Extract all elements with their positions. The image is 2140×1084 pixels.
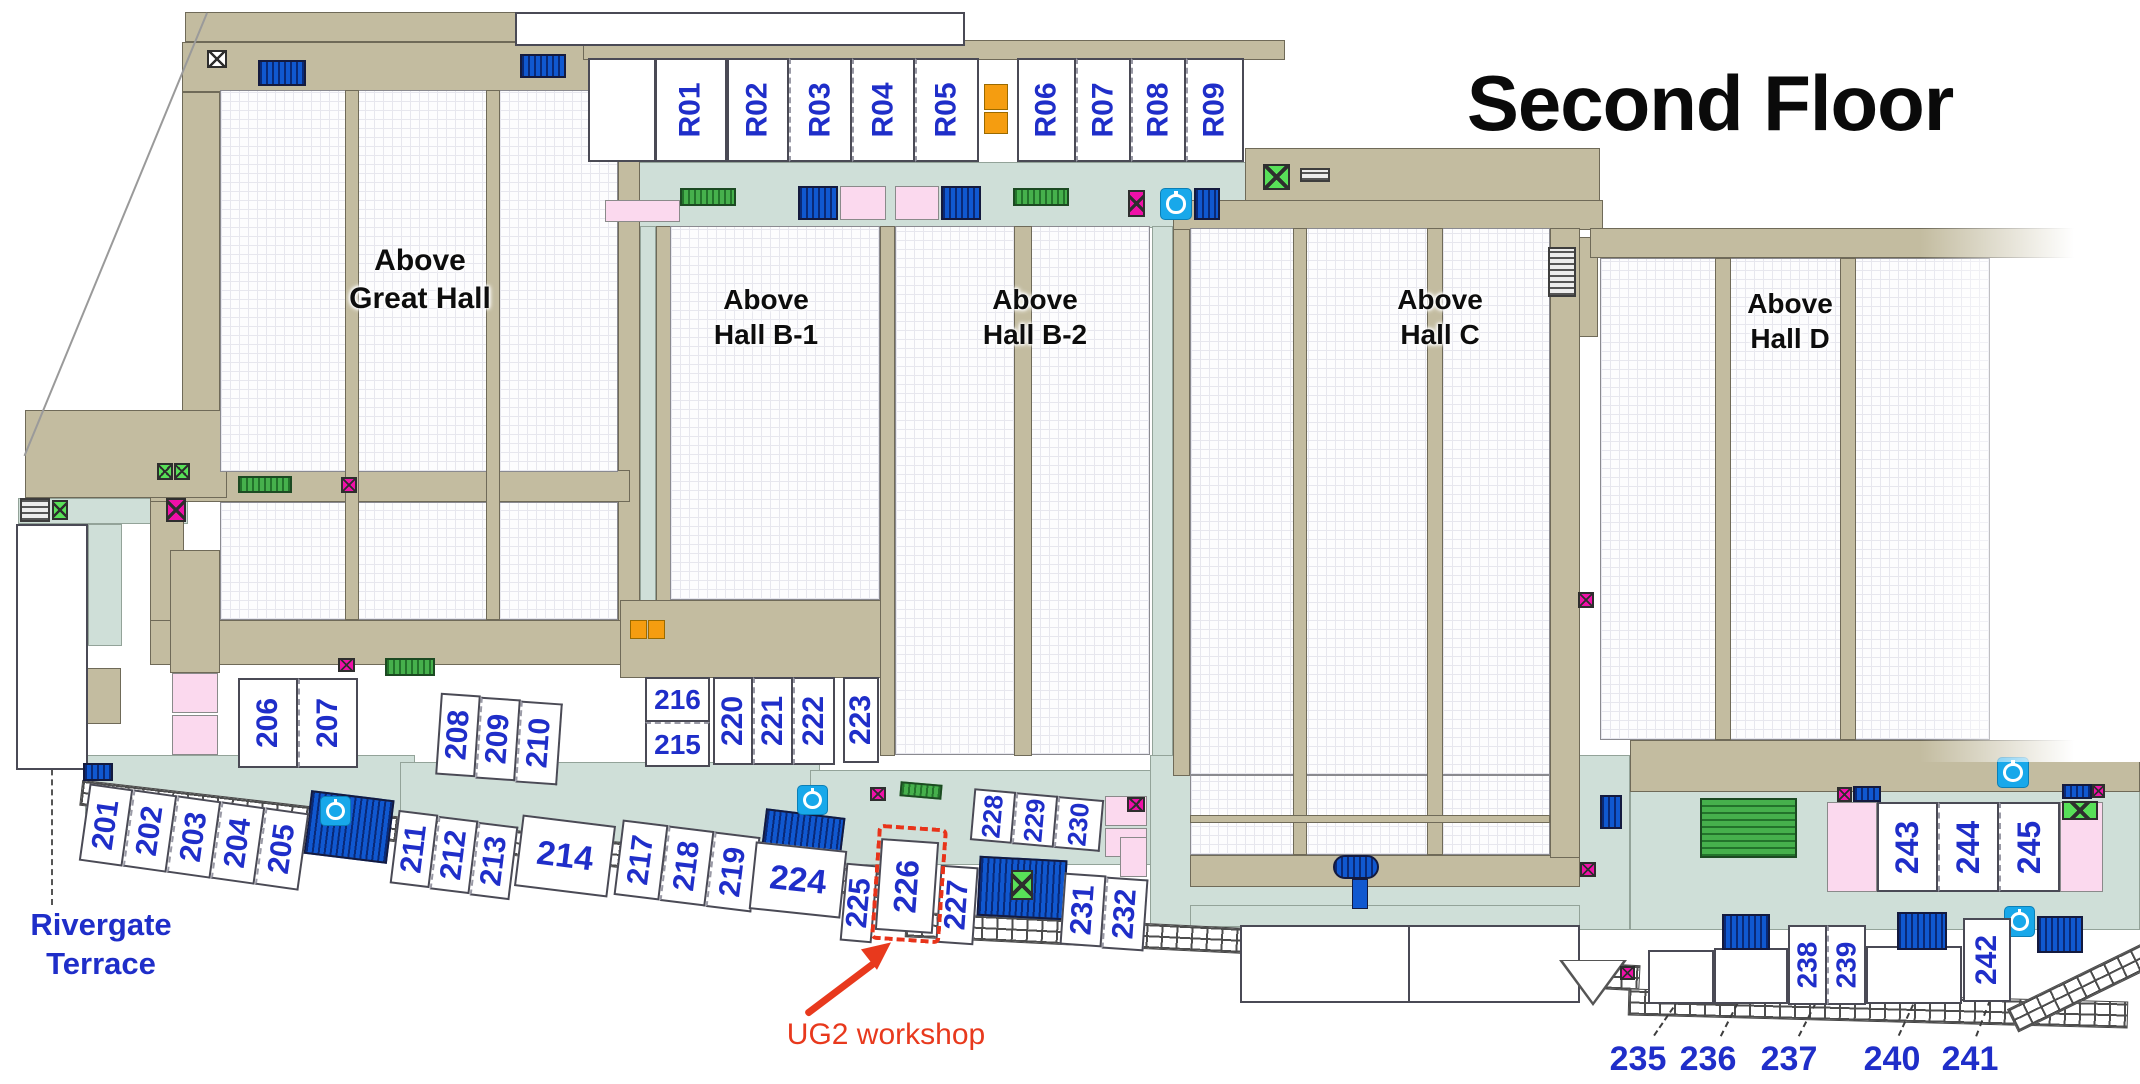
room-label-224: 224: [768, 858, 829, 903]
floor-plan: R01R02R03R04R05R06R07R08R092012022032042…: [0, 0, 2140, 1084]
restroom-area: [172, 715, 218, 755]
room-244: 244: [1938, 802, 1999, 892]
stairs-icon: [680, 188, 736, 206]
room-label-R05: R05: [930, 82, 964, 137]
restroom-area: [895, 186, 939, 220]
elevator-icon: [52, 500, 68, 520]
stairs-icon: [1700, 798, 1797, 858]
escalator-icon: [1600, 795, 1622, 829]
room-label-244: 244: [1950, 820, 1987, 873]
room-232: 232: [1102, 877, 1149, 952]
room-R04: R04: [852, 58, 915, 162]
room-label-217: 217: [621, 833, 661, 887]
room-label-221: 221: [756, 696, 790, 746]
charging-station-icon: [320, 796, 351, 826]
wall-segment: [1190, 855, 1580, 887]
room-label-230: 230: [1062, 801, 1097, 847]
room-230: 230: [1054, 796, 1104, 852]
room-216: 216: [645, 677, 710, 722]
room-label-210: 210: [520, 717, 557, 769]
elevator-icon: [870, 787, 886, 801]
escalator-icon: [1853, 786, 1881, 802]
plug-prong: [811, 788, 814, 793]
room-outline: [1408, 925, 1580, 1003]
room-223: 223: [843, 677, 879, 763]
room-label-238: 238: [1792, 942, 1824, 989]
corridor: [1152, 226, 1173, 756]
plug-prong: [334, 799, 337, 804]
room-outline: [16, 524, 88, 770]
room-label-207: 207: [311, 698, 345, 748]
callout-235: 235: [1598, 1040, 1678, 1080]
elevator-icon: [174, 463, 190, 480]
hall-label-hall-d: Above Hall D: [1670, 286, 1910, 356]
column-strip: [1293, 228, 1307, 855]
plug-prong: [2018, 909, 2021, 914]
elevator-icon: [1580, 862, 1596, 877]
escalator-icon: [520, 54, 566, 78]
room-R06: R06: [1017, 58, 1076, 162]
restroom-area: [605, 200, 680, 222]
plug-ring: [2010, 912, 2029, 931]
elevator-icon: [207, 50, 227, 68]
restroom-area: [1827, 802, 1877, 892]
stairs-icon: [1013, 188, 1069, 206]
room-label-203: 203: [174, 810, 215, 864]
room-label-212: 212: [434, 828, 474, 882]
room-222: 222: [793, 677, 835, 765]
room-label-206: 206: [251, 698, 285, 748]
orange-marker-icon: [984, 84, 1008, 110]
room-231: 231: [1060, 873, 1107, 948]
charging-station-icon: [1160, 188, 1192, 220]
escalator-icon: [83, 763, 113, 781]
orange-marker-icon: [984, 112, 1008, 134]
room-label-205: 205: [262, 822, 303, 876]
room-label-211: 211: [394, 823, 434, 875]
room-R02: R02: [727, 58, 789, 162]
fade-overlay: [1920, 132, 2140, 762]
room-label-219: 219: [713, 845, 753, 899]
room-238: 238: [1788, 925, 1827, 1005]
corridor: [88, 524, 122, 646]
room-213: 213: [470, 822, 519, 900]
room-208: 208: [435, 693, 481, 778]
hall-label-great-hall: Above Great Hall: [300, 242, 540, 317]
ug2-workshop-highlight-box: [870, 824, 948, 945]
room-245: 245: [1999, 802, 2060, 892]
column-strip: [1190, 815, 1550, 823]
callout-241: 241: [1930, 1040, 2010, 1080]
room-label-202: 202: [130, 804, 171, 858]
escalator-icon: [2062, 784, 2092, 799]
elevator-icon: [338, 658, 355, 672]
room-label-242: 242: [1970, 935, 2004, 985]
room-R03: R03: [789, 58, 852, 162]
plug-ring: [1166, 194, 1185, 213]
room-label-222: 222: [797, 696, 831, 746]
plug-ring: [803, 791, 822, 809]
spiral-stair-icon: [1352, 879, 1368, 909]
room-R01: R01: [655, 58, 727, 162]
stairs-icon: [385, 658, 435, 676]
wall-segment: [618, 92, 640, 650]
wall-segment: [25, 410, 227, 498]
hall-label-hall-b1: Above Hall B-1: [646, 282, 886, 352]
room-209: 209: [475, 697, 521, 782]
rivergate-terrace-label: Rivergate Terrace: [6, 906, 196, 984]
escalator-icon: [2037, 916, 2083, 953]
room-label-209: 209: [479, 713, 516, 765]
room-R08: R08: [1131, 58, 1186, 162]
orange-marker-icon: [630, 620, 647, 639]
escalator-icon: [258, 60, 306, 86]
elevator-icon: [157, 463, 173, 480]
column-strip: [345, 90, 359, 620]
room-R07: R07: [1076, 58, 1131, 162]
room-label-232: 232: [1106, 888, 1143, 940]
stairs-icon: [1300, 168, 1330, 182]
room-label-R09: R09: [1198, 82, 1232, 137]
wall-segment: [1173, 200, 1603, 230]
room-label-218: 218: [667, 839, 707, 893]
stairs-icon: [238, 476, 292, 493]
room-label-R07: R07: [1087, 82, 1121, 137]
exterior-diagonal-wall: [24, 13, 208, 457]
room-label-215: 215: [654, 729, 701, 761]
restroom-area: [1120, 837, 1147, 877]
room-label-R02: R02: [741, 82, 775, 137]
room-label-208: 208: [439, 709, 476, 761]
terrace-line1: Rivergate: [30, 907, 171, 942]
room-228: 228: [970, 788, 1016, 843]
room-label-239: 239: [1831, 942, 1863, 989]
plug-ring: [326, 802, 345, 820]
terrace-line2: Terrace: [46, 946, 156, 981]
escalator-icon: [1897, 912, 1947, 950]
wall-segment: [620, 600, 882, 678]
wall-segment: [1173, 226, 1190, 776]
room-214: 214: [514, 815, 616, 898]
elevator-icon: [1263, 164, 1290, 190]
room-206: 206: [238, 678, 298, 768]
room-224: 224: [749, 841, 848, 918]
room-label-243: 243: [1889, 820, 1926, 873]
spiral-stair-icon: [1333, 855, 1379, 879]
elevator-icon: [1011, 870, 1033, 900]
room-label-201: 201: [86, 798, 127, 852]
room-label-227: 227: [938, 879, 975, 931]
wall-segment: [170, 550, 220, 673]
room-label-216: 216: [654, 684, 701, 716]
escalator-icon: [798, 186, 838, 220]
escalator-icon: [1194, 188, 1220, 220]
room-outline: [1648, 950, 1714, 1004]
corridor: [1190, 905, 1580, 927]
room-239: 239: [1827, 925, 1866, 1005]
room-label-R03: R03: [803, 82, 837, 137]
room-label-R01: R01: [674, 82, 708, 137]
elevator-icon: [1127, 797, 1145, 812]
ug2-workshop-arrow: [804, 960, 877, 1017]
room-outline: [1240, 925, 1410, 1003]
room-label-R04: R04: [866, 82, 900, 137]
page-title: Second Floor: [1410, 58, 2010, 149]
callout-236: 236: [1668, 1040, 1748, 1080]
room-label-220: 220: [716, 696, 750, 746]
room-221: 221: [753, 677, 793, 765]
room-label-R06: R06: [1030, 82, 1064, 137]
room-label-229: 229: [1018, 797, 1053, 843]
elevator-icon: [341, 477, 357, 493]
plug-ring: [2003, 763, 2022, 782]
orange-marker-icon: [648, 620, 665, 639]
room-label-245: 245: [2011, 820, 2048, 873]
prow-fill: [1563, 961, 1623, 1002]
room-220: 220: [713, 677, 753, 765]
room-label-223: 223: [844, 695, 878, 745]
room-210: 210: [515, 701, 563, 786]
room-outline: [1866, 946, 1962, 1004]
hall-label-hall-c: Above Hall C: [1320, 282, 1560, 352]
hall-label-hall-b2: Above Hall B-2: [915, 282, 1155, 352]
escalator-icon: [941, 186, 981, 220]
escalator-icon: [1722, 914, 1770, 950]
elevator-icon: [1128, 190, 1145, 217]
restroom-area: [172, 673, 218, 713]
stairs-icon: [20, 498, 50, 522]
elevator-icon: [1578, 592, 1594, 608]
charging-station-icon: [797, 785, 828, 815]
room-label-231: 231: [1064, 884, 1101, 936]
room-label-R08: R08: [1142, 82, 1176, 137]
elevator-icon: [2062, 801, 2098, 820]
room-215: 215: [645, 722, 710, 767]
elevator-icon: [166, 498, 186, 522]
ug2-workshop-label: UG2 workshop: [758, 1018, 1014, 1052]
wall-segment: [182, 42, 635, 92]
elevator-icon: [1620, 966, 1635, 980]
plug-prong: [1174, 191, 1178, 196]
room-outline: [515, 12, 965, 46]
room-R05: R05: [915, 58, 979, 162]
room-label-214: 214: [534, 833, 595, 879]
elevator-icon: [1837, 787, 1852, 802]
room-229: 229: [1012, 792, 1058, 847]
room-207: 207: [298, 678, 358, 768]
callout-240: 240: [1852, 1040, 1932, 1080]
room-outline: [588, 58, 656, 162]
column-strip: [486, 90, 500, 620]
room-label-204: 204: [218, 816, 259, 870]
hall-floor: [220, 502, 618, 620]
room-242: 242: [1963, 918, 2011, 1002]
room-outline: [1714, 948, 1788, 1004]
room-243: 243: [1877, 802, 1938, 892]
room-R09: R09: [1186, 58, 1244, 162]
room-label-228: 228: [976, 793, 1011, 839]
elevator-icon: [2092, 784, 2105, 798]
callout-237: 237: [1749, 1040, 1829, 1080]
room-label-213: 213: [474, 834, 514, 888]
restroom-area: [840, 186, 886, 220]
room-205: 205: [255, 807, 309, 890]
